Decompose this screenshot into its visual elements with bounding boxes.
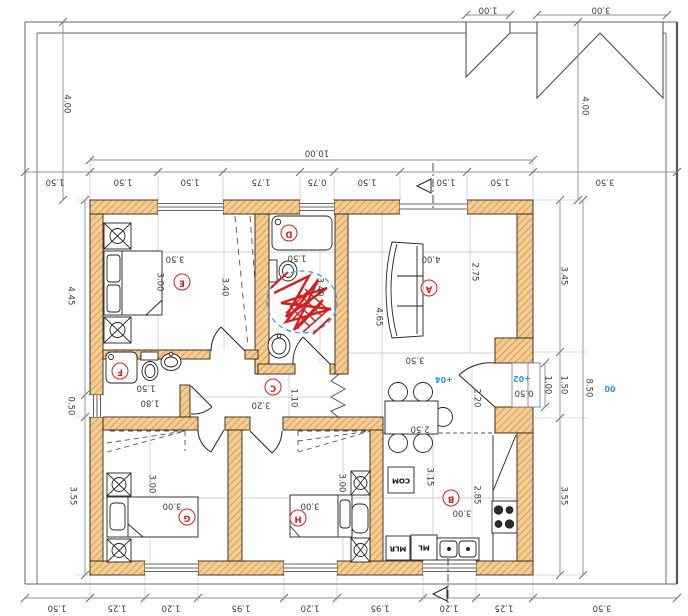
gate-symbols [466, 22, 663, 98]
sofa-icon [386, 242, 423, 338]
nightstand-icon [351, 471, 370, 495]
furniture-room-g [107, 473, 198, 562]
nightstand-icon [104, 223, 131, 249]
shower-icon [272, 216, 332, 250]
furniture-room-e [104, 223, 162, 343]
furniture-room-a [386, 242, 423, 338]
nightstand-icon [104, 317, 131, 343]
vehicle-gate-icon [537, 22, 663, 98]
side-table-icon [352, 504, 368, 533]
furniture-room-h [290, 471, 370, 562]
shower-icon [106, 352, 137, 383]
floor-plan-drawing [0, 0, 688, 616]
washbasin-icon [268, 334, 290, 358]
stove-icon [492, 501, 517, 533]
section-arrow-top [417, 179, 431, 193]
wall-break-zigzag [331, 374, 345, 418]
door-room-f [191, 386, 212, 414]
nightstand-icon [351, 538, 370, 562]
door-room-d [293, 337, 330, 364]
washing-machine-icon [386, 536, 410, 560]
nightstand-icon [107, 473, 131, 496]
door-room-h [250, 431, 282, 453]
double-sink-icon [437, 538, 479, 560]
bed-single-icon [107, 497, 198, 537]
bed-single-icon [290, 495, 352, 537]
entry-porch [512, 363, 540, 407]
toilet-icon [269, 260, 297, 282]
nightstand-icon [107, 539, 131, 562]
floor-plan-canvas: 1.003.004.004.0010.001.501.501.501.750.7… [0, 0, 688, 616]
door-entry [459, 363, 495, 407]
dishwasher-icon [411, 535, 437, 560]
furniture-room-d [268, 216, 332, 358]
bed-double-icon [104, 251, 162, 315]
door-room-e [211, 327, 245, 351]
dining-table-icon [385, 401, 438, 434]
markup-redline [267, 271, 337, 334]
commode-icon [388, 467, 414, 493]
toilet-icon [141, 352, 158, 381]
pedestrian-gate-icon [466, 22, 510, 77]
furniture-room-f [106, 352, 181, 383]
section-arrow-bottom [433, 587, 447, 601]
door-room-g [198, 430, 224, 452]
